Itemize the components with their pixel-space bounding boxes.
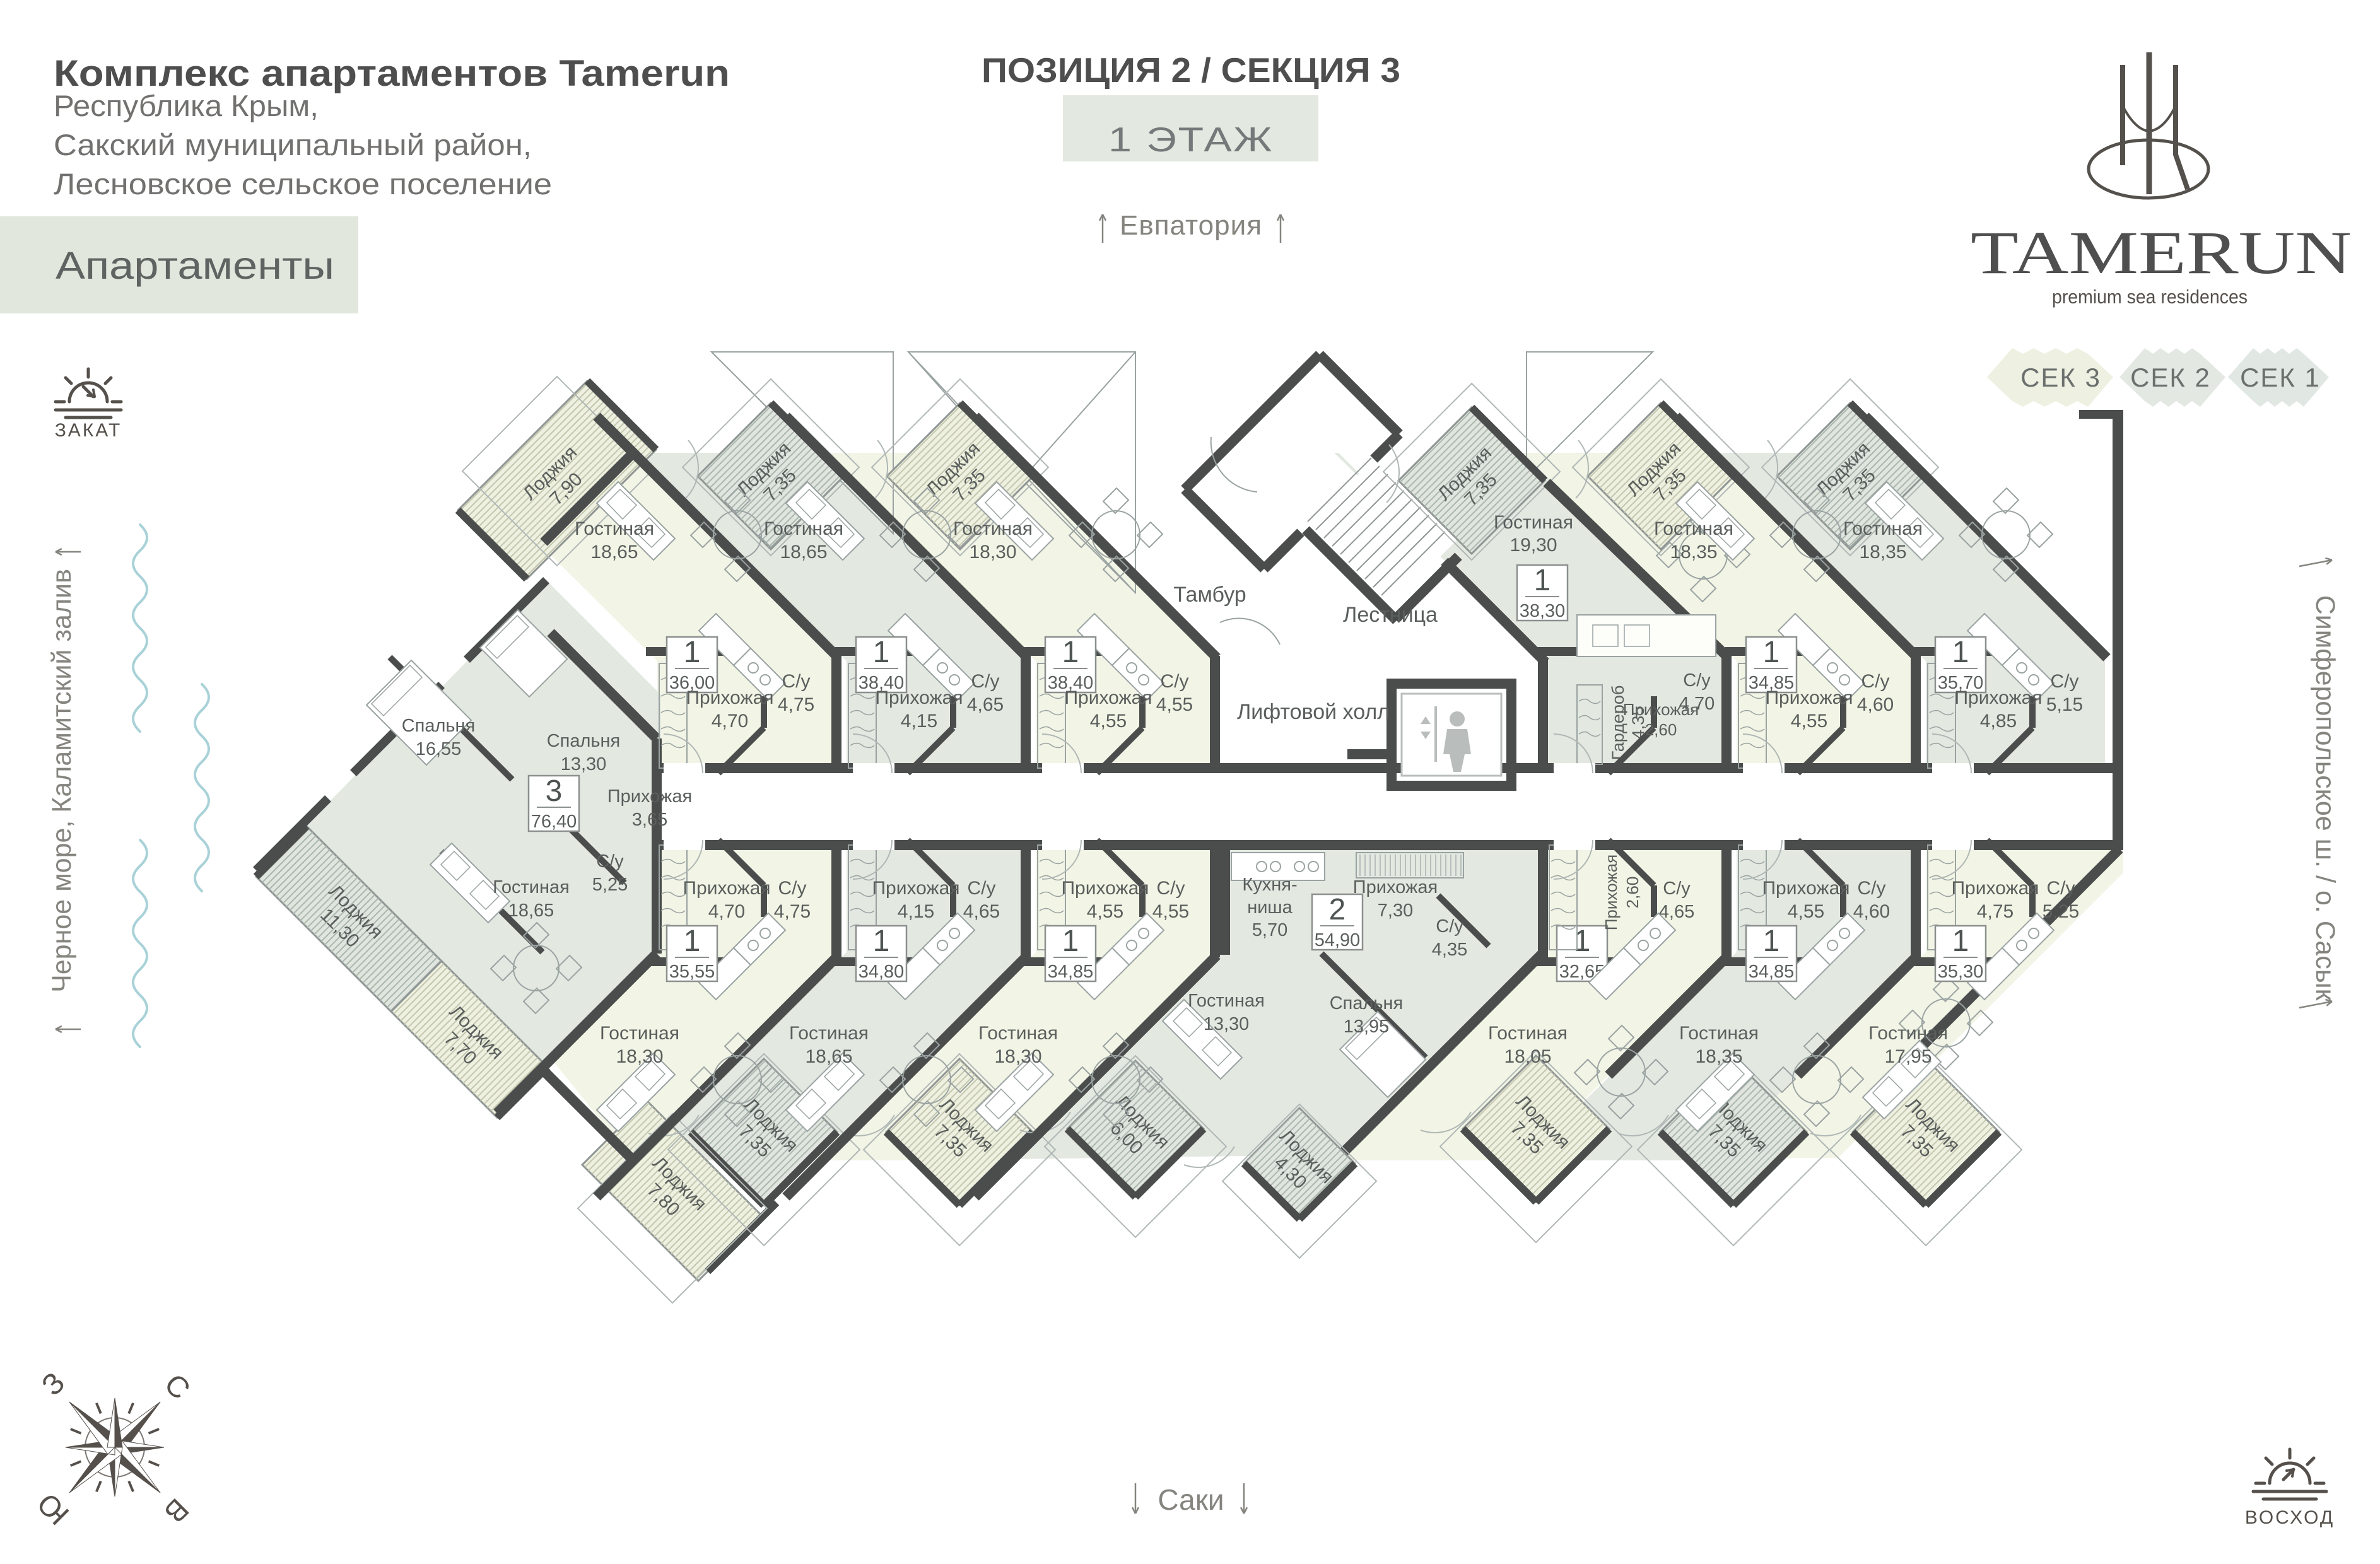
svg-text:5,70: 5,70 <box>1252 920 1287 940</box>
svg-text:ПОЗИЦИЯ 2 / СЕКЦИЯ 3: ПОЗИЦИЯ 2 / СЕКЦИЯ 3 <box>982 50 1400 90</box>
svg-text:1 ЭТАЖ: 1 ЭТАЖ <box>1108 120 1274 159</box>
svg-text:1: 1 <box>1062 636 1079 669</box>
svg-text:Лифтовой холл: Лифтовой холл <box>1237 700 1390 724</box>
svg-text:1: 1 <box>1574 925 1591 958</box>
svg-text:4,55: 4,55 <box>1152 901 1189 922</box>
svg-text:4,65: 4,65 <box>963 901 1000 922</box>
svg-text:18,35: 18,35 <box>1670 542 1717 563</box>
svg-text:13,30: 13,30 <box>1204 1014 1250 1034</box>
svg-text:Прихожая: Прихожая <box>686 687 773 708</box>
svg-text:1: 1 <box>1763 925 1780 958</box>
svg-text:Прихожая: Прихожая <box>1353 877 1438 897</box>
svg-text:Прихожая: Прихожая <box>1602 855 1621 930</box>
svg-text:Гостиная: Гостиная <box>1868 1023 1948 1044</box>
svg-text:4,75: 4,75 <box>1977 901 2014 922</box>
svg-text:Лесновское сельское поселение: Лесновское сельское поселение <box>54 167 552 201</box>
svg-text:1: 1 <box>1763 636 1780 669</box>
svg-text:Прихожая: Прихожая <box>1951 878 2039 899</box>
svg-text:Гостиная: Гостиная <box>953 518 1033 539</box>
svg-text:3: 3 <box>546 774 563 808</box>
svg-text:Симферопольское ш. / о. Сасык: Симферопольское ш. / о. Сасык <box>2310 595 2340 1001</box>
svg-text:СЕК 1: СЕК 1 <box>2240 363 2321 392</box>
svg-text:С/у: С/у <box>1683 670 1711 691</box>
svg-text:5,25: 5,25 <box>592 875 628 895</box>
svg-text:Гостиная: Гостиная <box>789 1023 869 1044</box>
svg-text:С/у: С/у <box>2051 671 2079 692</box>
svg-text:7,30: 7,30 <box>1378 901 1413 921</box>
svg-text:4,70: 4,70 <box>712 711 748 732</box>
svg-text:С/у: С/у <box>1161 671 1189 692</box>
svg-text:4,55: 4,55 <box>1788 901 1824 922</box>
svg-text:Саки: Саки <box>1158 1483 1224 1516</box>
svg-text:18,30: 18,30 <box>994 1046 1041 1067</box>
svg-text:4,75: 4,75 <box>774 901 811 922</box>
svg-text:4,55: 4,55 <box>1791 711 1827 732</box>
svg-text:18,65: 18,65 <box>780 542 827 563</box>
svg-text:Прихожая: Прихожая <box>1762 878 1849 899</box>
svg-text:18,35: 18,35 <box>1859 542 1906 563</box>
svg-text:2: 2 <box>1329 893 1346 926</box>
svg-text:4,65: 4,65 <box>967 694 1004 715</box>
svg-text:Гостиная: Гостиная <box>1494 512 1573 533</box>
svg-text:1: 1 <box>873 636 890 669</box>
svg-text:Гостиная: Гостиная <box>600 1023 679 1044</box>
svg-text:С/у: С/у <box>1157 878 1185 899</box>
svg-text:Прихожая: Прихожая <box>607 786 692 807</box>
svg-text:4,85: 4,85 <box>1980 711 2017 732</box>
svg-text:Гостиная: Гостиная <box>1654 518 1733 539</box>
svg-text:Прихожая: Прихожая <box>1061 878 1149 899</box>
svg-text:Кухня-: Кухня- <box>1242 875 1297 895</box>
svg-text:С/у: С/у <box>1436 916 1463 937</box>
svg-text:4,70: 4,70 <box>1679 694 1715 714</box>
svg-text:Республика Крым,: Республика Крым, <box>54 89 319 122</box>
svg-text:1: 1 <box>1062 925 1079 958</box>
svg-text:Гардероб: Гардероб <box>1609 686 1627 761</box>
svg-text:СЕК 2: СЕК 2 <box>2130 363 2211 392</box>
svg-text:СЕК 3: СЕК 3 <box>2020 363 2101 392</box>
svg-text:TAMERUN: TAMERUN <box>1971 219 2352 286</box>
svg-text:1: 1 <box>1534 564 1551 597</box>
svg-text:С/у: С/у <box>1861 671 1890 692</box>
svg-text:18,05: 18,05 <box>1504 1046 1551 1067</box>
svg-text:ниша: ниша <box>1247 897 1293 918</box>
svg-text:Спальня: Спальня <box>402 716 476 736</box>
svg-text:1: 1 <box>873 925 890 958</box>
svg-text:19,30: 19,30 <box>1509 535 1557 556</box>
svg-text:2,60: 2,60 <box>1623 877 1642 909</box>
svg-text:4,60: 4,60 <box>1853 901 1890 922</box>
svg-text:ЗАКАТ: ЗАКАТ <box>55 420 122 441</box>
svg-text:С/у: С/у <box>1663 878 1691 899</box>
svg-text:Сакский муниципальный район,: Сакский муниципальный район, <box>54 128 532 161</box>
svg-text:1: 1 <box>684 636 701 669</box>
svg-text:4,35: 4,35 <box>1432 940 1467 960</box>
svg-text:Тамбур: Тамбур <box>1173 583 1246 607</box>
svg-text:35,30: 35,30 <box>1938 962 1984 982</box>
svg-text:35,55: 35,55 <box>669 962 715 982</box>
svg-text:Прихожая: Прихожая <box>1064 687 1152 708</box>
svg-text:premium sea residences: premium sea residences <box>2052 286 2248 308</box>
svg-text:Прихожая: Прихожая <box>872 878 959 899</box>
svg-text:Гостиная: Гостиная <box>1188 991 1265 1011</box>
svg-text:Черное море, Каламитский залив: Черное море, Каламитский залив <box>47 569 77 993</box>
svg-text:Спальня: Спальня <box>1330 993 1404 1013</box>
svg-text:18,35: 18,35 <box>1695 1046 1742 1067</box>
svg-text:Комплекс апартаментов Tamerun: Комплекс апартаментов Tamerun <box>54 53 730 94</box>
svg-text:С/у: С/у <box>596 851 624 872</box>
svg-text:4,55: 4,55 <box>1156 694 1193 715</box>
svg-text:С/у: С/у <box>1858 878 1886 899</box>
svg-text:3,65: 3,65 <box>632 810 667 830</box>
svg-text:18,65: 18,65 <box>590 542 638 563</box>
svg-text:34,85: 34,85 <box>1048 962 1094 982</box>
svg-text:18,65: 18,65 <box>805 1046 852 1067</box>
svg-text:Гостиная: Гостиная <box>575 518 654 539</box>
svg-text:Лестница: Лестница <box>1343 603 1438 627</box>
svg-text:18,30: 18,30 <box>616 1046 663 1067</box>
svg-text:4,15: 4,15 <box>898 901 934 922</box>
svg-text:4,70: 4,70 <box>708 901 745 922</box>
svg-text:Евпатория: Евпатория <box>1120 210 1262 241</box>
svg-text:С/у: С/у <box>782 671 811 692</box>
svg-text:Гостиная: Гостиная <box>978 1023 1058 1044</box>
svg-text:18,65: 18,65 <box>508 901 554 921</box>
svg-text:Апартаменты: Апартаменты <box>56 244 334 287</box>
svg-text:Прихожая: Прихожая <box>875 687 963 708</box>
svg-text:С/у: С/у <box>971 671 1000 692</box>
svg-text:1: 1 <box>684 925 701 958</box>
svg-text:С/у: С/у <box>2047 878 2075 899</box>
svg-text:17,95: 17,95 <box>1884 1046 1932 1067</box>
svg-text:13,95: 13,95 <box>1344 1017 1390 1037</box>
svg-text:34,80: 34,80 <box>859 962 905 982</box>
svg-text:Спальня: Спальня <box>547 731 621 751</box>
svg-text:Прихожая: Прихожая <box>683 878 770 899</box>
svg-text:4,60: 4,60 <box>1857 694 1894 715</box>
svg-text:Прихожая: Прихожая <box>1765 687 1853 708</box>
svg-text:ВОСХОД: ВОСХОД <box>2245 1507 2335 1528</box>
svg-text:Прихожая: Прихожая <box>1954 687 2042 708</box>
svg-text:Гостиная: Гостиная <box>1488 1023 1568 1044</box>
svg-text:1: 1 <box>1952 925 1969 958</box>
svg-text:С/у: С/у <box>968 878 996 899</box>
svg-text:16,55: 16,55 <box>416 739 462 759</box>
svg-text:Гостиная: Гостиная <box>764 518 843 539</box>
svg-text:4,55: 4,55 <box>1087 901 1123 922</box>
svg-text:Гостиная: Гостиная <box>493 877 570 897</box>
svg-text:18,30: 18,30 <box>969 542 1016 563</box>
svg-text:4,75: 4,75 <box>778 694 814 715</box>
svg-text:Гостиная: Гостиная <box>1679 1023 1759 1044</box>
svg-text:5,25: 5,25 <box>2043 901 2079 922</box>
svg-text:4,55: 4,55 <box>1090 711 1127 732</box>
svg-text:2,60: 2,60 <box>1645 720 1677 739</box>
svg-text:С/у: С/у <box>778 878 807 899</box>
svg-text:54,90: 54,90 <box>1315 930 1361 950</box>
svg-text:1: 1 <box>1952 636 1969 669</box>
svg-text:13,30: 13,30 <box>561 754 607 774</box>
svg-text:38,30: 38,30 <box>1520 601 1566 621</box>
svg-text:34,85: 34,85 <box>1749 962 1795 982</box>
svg-text:Гостиная: Гостиная <box>1843 518 1923 539</box>
svg-text:5,15: 5,15 <box>2046 694 2083 715</box>
svg-text:4,15: 4,15 <box>901 711 937 732</box>
svg-text:76,40: 76,40 <box>531 812 577 832</box>
